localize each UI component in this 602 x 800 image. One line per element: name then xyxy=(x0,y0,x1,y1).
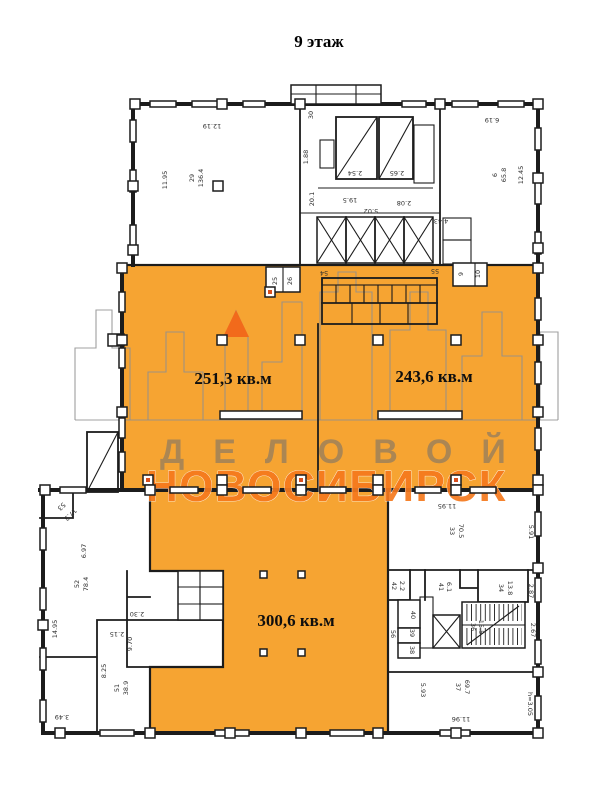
room-label: 5.93 xyxy=(419,683,427,697)
area-label-251: 251,3 кв.м xyxy=(194,369,272,388)
room-label: 40 xyxy=(409,611,417,619)
core-staircases xyxy=(300,117,440,213)
elevator-bank xyxy=(317,217,433,263)
room-label: 69.7 xyxy=(463,680,471,694)
room-label: 20.1 xyxy=(308,192,316,206)
room-label: 41 xyxy=(437,583,445,591)
room-label: 2.54 xyxy=(348,169,362,177)
room-label: 6.19 xyxy=(485,116,499,124)
room-label: 5.91 xyxy=(527,525,535,539)
room-label: 6 xyxy=(491,173,499,177)
room-label: 14.95 xyxy=(51,620,59,639)
room-label: 51 xyxy=(113,684,121,692)
room-label: 10 xyxy=(474,270,482,278)
room-label: 11.95 xyxy=(438,502,457,510)
room-label: 30 xyxy=(307,111,315,119)
room-label: 65.8 xyxy=(500,168,508,182)
room-label: 2.08 xyxy=(397,199,411,207)
partition-bar xyxy=(220,411,302,419)
room-label: 55 xyxy=(431,267,439,275)
area-label-300: 300,6 кв.м xyxy=(257,611,335,630)
room-label: 2.87 xyxy=(527,584,535,598)
room-label: 8.25 xyxy=(100,664,108,678)
room-label: 15.5 xyxy=(477,620,485,634)
room-label: 4.43 xyxy=(434,217,448,225)
top-block xyxy=(122,85,538,265)
room-label: 2.2 xyxy=(398,581,406,591)
room-label: 78.4 xyxy=(82,577,90,591)
room-label: 12.19 xyxy=(203,122,222,130)
room-label: 38 xyxy=(408,646,416,654)
room-label: 3.49 xyxy=(55,713,69,721)
floor-plan-page: ДЕЛОВОЙ НОВОСИБИРСК xyxy=(0,0,602,800)
room-label: 2.65 xyxy=(390,169,404,177)
grid-room-block xyxy=(178,571,223,620)
room-label: 5.02 xyxy=(364,207,378,215)
room-label: 136.4 xyxy=(197,169,205,188)
room-label: 56 xyxy=(389,630,397,638)
room-label: 13.8 xyxy=(506,581,514,595)
room-label: 37 xyxy=(454,683,462,691)
room-label: 2.15 xyxy=(110,630,124,638)
room-label: 26 xyxy=(286,277,294,285)
shaft-wall xyxy=(420,597,433,648)
room-label: 11.96 xyxy=(452,715,471,723)
elevator-shaft xyxy=(433,615,460,648)
page-title: 9 этаж xyxy=(294,32,344,51)
room-label: 12.45 xyxy=(517,166,525,185)
room-label: 1.88 xyxy=(302,150,310,164)
room-label: 29 xyxy=(188,174,196,182)
room-label: 6.97 xyxy=(80,544,88,558)
area-label-243: 243,6 кв.м xyxy=(395,367,473,386)
room-label: 54 xyxy=(320,269,328,277)
room-label: 25 xyxy=(271,277,279,285)
room-label: 19.5 xyxy=(343,196,357,204)
watermark-text: ДЕЛОВОЙ НОВОСИБИРСК xyxy=(146,432,535,511)
small-room xyxy=(443,240,471,264)
room-label: 38.9 xyxy=(122,681,130,695)
room-label: 9 xyxy=(457,272,465,276)
partition-bar xyxy=(378,411,462,419)
room-label: 36 xyxy=(469,623,477,631)
room-label: 33 xyxy=(448,527,456,535)
room-label: 6.1 xyxy=(445,582,453,592)
room-label: 2.67 xyxy=(529,623,537,637)
room-label: 52 xyxy=(73,580,81,588)
room-label: 34 xyxy=(497,584,505,592)
room-label: h=3.05 xyxy=(526,692,534,716)
room-label: 11.95 xyxy=(161,171,169,190)
room-label: 2.30 xyxy=(130,610,144,618)
room-label: 70.5 xyxy=(457,524,465,538)
room-label: 39 xyxy=(408,629,416,637)
room-label: 9.70 xyxy=(126,637,134,651)
room-label: 53 xyxy=(56,501,68,513)
room-label: 42 xyxy=(390,582,398,590)
floor-plan-svg: ДЕЛОВОЙ НОВОСИБИРСК xyxy=(0,0,602,800)
external-staircase xyxy=(87,432,118,492)
